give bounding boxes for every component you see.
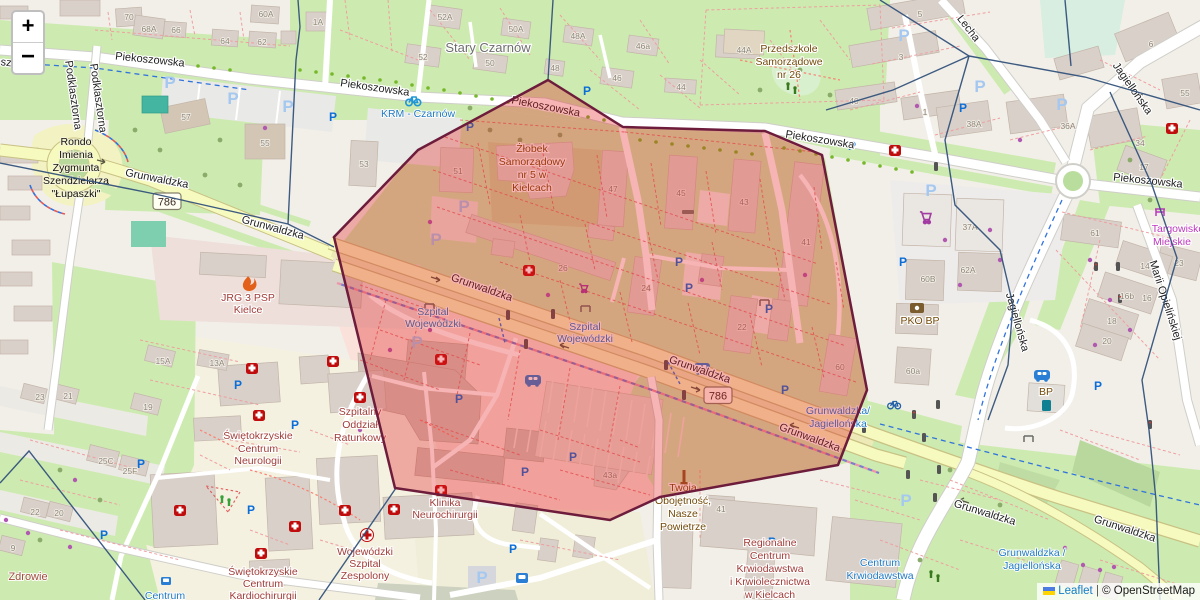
svg-text:61: 61 (1090, 228, 1100, 238)
svg-text:57: 57 (181, 112, 191, 122)
svg-text:60A: 60A (258, 9, 273, 19)
svg-text:62A: 62A (960, 265, 975, 275)
svg-text:P: P (100, 528, 108, 542)
svg-text:Nasze: Nasze (668, 508, 698, 520)
svg-text:BP: BP (1039, 386, 1053, 398)
svg-text:18: 18 (1107, 316, 1117, 326)
svg-text:70: 70 (124, 12, 134, 22)
svg-text:20: 20 (54, 508, 64, 518)
svg-text:P: P (227, 89, 238, 108)
svg-text:Zdrowie: Zdrowie (8, 571, 47, 583)
svg-text:6: 6 (1149, 39, 1154, 49)
svg-text:P: P (509, 542, 517, 556)
svg-text:68A: 68A (141, 24, 156, 34)
svg-text:Targowisko: Targowisko (1152, 223, 1200, 235)
svg-text:37A: 37A (962, 222, 977, 232)
svg-text:P: P (234, 378, 242, 392)
svg-text:Kielce: Kielce (234, 304, 263, 316)
svg-text:41: 41 (716, 504, 726, 514)
svg-text:Świętokrzyskie: Świętokrzyskie (223, 429, 293, 442)
svg-text:5: 5 (918, 9, 923, 19)
svg-text:15A: 15A (155, 356, 170, 366)
svg-text:Szendzielarza: Szendzielarza (43, 175, 109, 187)
svg-text:48A: 48A (570, 31, 585, 41)
svg-text:60a: 60a (906, 366, 920, 376)
svg-text:Centrum: Centrum (145, 590, 186, 600)
svg-text:P: P (959, 101, 967, 115)
svg-text:Regionalne: Regionalne (743, 537, 796, 549)
svg-text:13A: 13A (209, 358, 224, 368)
svg-text:Powietrze: Powietrze (660, 521, 706, 533)
svg-text:P: P (137, 457, 145, 471)
svg-text:P: P (898, 26, 909, 45)
svg-text:Szpital: Szpital (349, 558, 381, 570)
svg-text:1: 1 (923, 107, 928, 117)
svg-text:22: 22 (30, 507, 40, 517)
svg-text:P: P (900, 491, 911, 510)
svg-text:i Krwiolecznictwa: i Krwiolecznictwa (730, 576, 810, 588)
svg-text:Ratunkowy: Ratunkowy (334, 432, 387, 444)
svg-text:19: 19 (143, 402, 153, 412)
svg-text:Centrum: Centrum (750, 550, 791, 562)
svg-text:Świętokrzyskie: Świętokrzyskie (228, 565, 298, 578)
svg-text:P: P (1094, 379, 1102, 393)
svg-text:46: 46 (612, 73, 622, 83)
svg-text:3: 3 (899, 52, 904, 62)
svg-text:Jagiellońska: Jagiellońska (1003, 560, 1061, 572)
svg-text:P: P (1056, 95, 1067, 114)
svg-text:P: P (583, 84, 591, 98)
svg-text:50: 50 (485, 58, 495, 68)
svg-text:52A: 52A (437, 12, 452, 22)
svg-text:Oddział: Oddział (342, 419, 378, 431)
svg-text:62: 62 (257, 37, 267, 47)
svg-text:14: 14 (1140, 261, 1150, 271)
svg-text:"Łupaszki": "Łupaszki" (52, 188, 101, 200)
svg-text:Zespolony: Zespolony (341, 570, 390, 582)
svg-text:Zygmunta: Zygmunta (53, 162, 100, 174)
svg-text:Centrum: Centrum (860, 557, 901, 569)
svg-text:55: 55 (1180, 88, 1190, 98)
svg-text:P: P (476, 568, 487, 587)
svg-text:23: 23 (35, 392, 45, 402)
svg-text:48: 48 (550, 63, 560, 73)
svg-text:25F: 25F (123, 466, 138, 476)
svg-text:Grunwaldzka /: Grunwaldzka / (998, 547, 1065, 559)
svg-text:Neurologii: Neurologii (234, 455, 281, 467)
svg-text:JRG 3 PSP: JRG 3 PSP (221, 292, 275, 304)
svg-text:PKO BP: PKO BP (900, 315, 939, 327)
svg-text:P: P (974, 77, 985, 96)
svg-text:P: P (282, 97, 293, 116)
svg-text:Przedszkole: Przedszkole (760, 43, 817, 55)
svg-text:20: 20 (1102, 336, 1112, 346)
svg-text:55: 55 (260, 138, 270, 148)
svg-text:21: 21 (63, 391, 73, 401)
svg-text:36A: 36A (1060, 121, 1075, 131)
svg-text:16b: 16b (1120, 291, 1134, 301)
svg-text:Krwiodawstwa: Krwiodawstwa (736, 563, 803, 575)
svg-text:Klinika: Klinika (430, 497, 461, 509)
svg-text:60B: 60B (920, 274, 935, 284)
svg-text:34: 34 (1135, 138, 1145, 148)
svg-text:Centrum: Centrum (243, 578, 284, 590)
svg-text:64: 64 (220, 36, 230, 46)
svg-text:44: 44 (676, 82, 686, 92)
svg-text:Krwiodawstwa: Krwiodawstwa (846, 570, 913, 582)
svg-text:Rondo: Rondo (61, 136, 92, 148)
svg-text:P: P (899, 255, 907, 269)
svg-text:53: 53 (359, 159, 369, 169)
svg-text:50A: 50A (508, 24, 523, 34)
svg-text:66: 66 (171, 25, 181, 35)
svg-text:Wojewódzki: Wojewódzki (337, 546, 393, 558)
svg-text:Kardiochirurgii: Kardiochirurgii (229, 590, 296, 600)
svg-text:w Kielcach: w Kielcach (744, 589, 795, 600)
svg-text:nr 26: nr 26 (777, 69, 801, 81)
svg-text:P: P (164, 73, 175, 92)
svg-text:52: 52 (418, 52, 428, 62)
svg-text:25C: 25C (98, 456, 114, 466)
svg-text:46a: 46a (636, 41, 650, 51)
svg-text:1A: 1A (313, 17, 324, 27)
svg-text:KRM - Czarnów: KRM - Czarnów (381, 108, 456, 120)
svg-text:Stary Czarnów: Stary Czarnów (445, 40, 531, 55)
svg-text:16: 16 (1142, 293, 1152, 303)
svg-text:Imienia: Imienia (59, 149, 93, 161)
svg-text:Centrum: Centrum (238, 443, 279, 455)
svg-text:P: P (247, 503, 255, 517)
svg-text:38A: 38A (966, 119, 981, 129)
svg-text:P: P (925, 181, 936, 200)
svg-text:Samorządowe: Samorządowe (755, 56, 822, 68)
svg-text:P: P (329, 110, 337, 124)
svg-text:Neurochirurgii: Neurochirurgii (412, 509, 477, 521)
svg-text:9: 9 (11, 543, 16, 553)
svg-text:44A: 44A (736, 45, 751, 55)
